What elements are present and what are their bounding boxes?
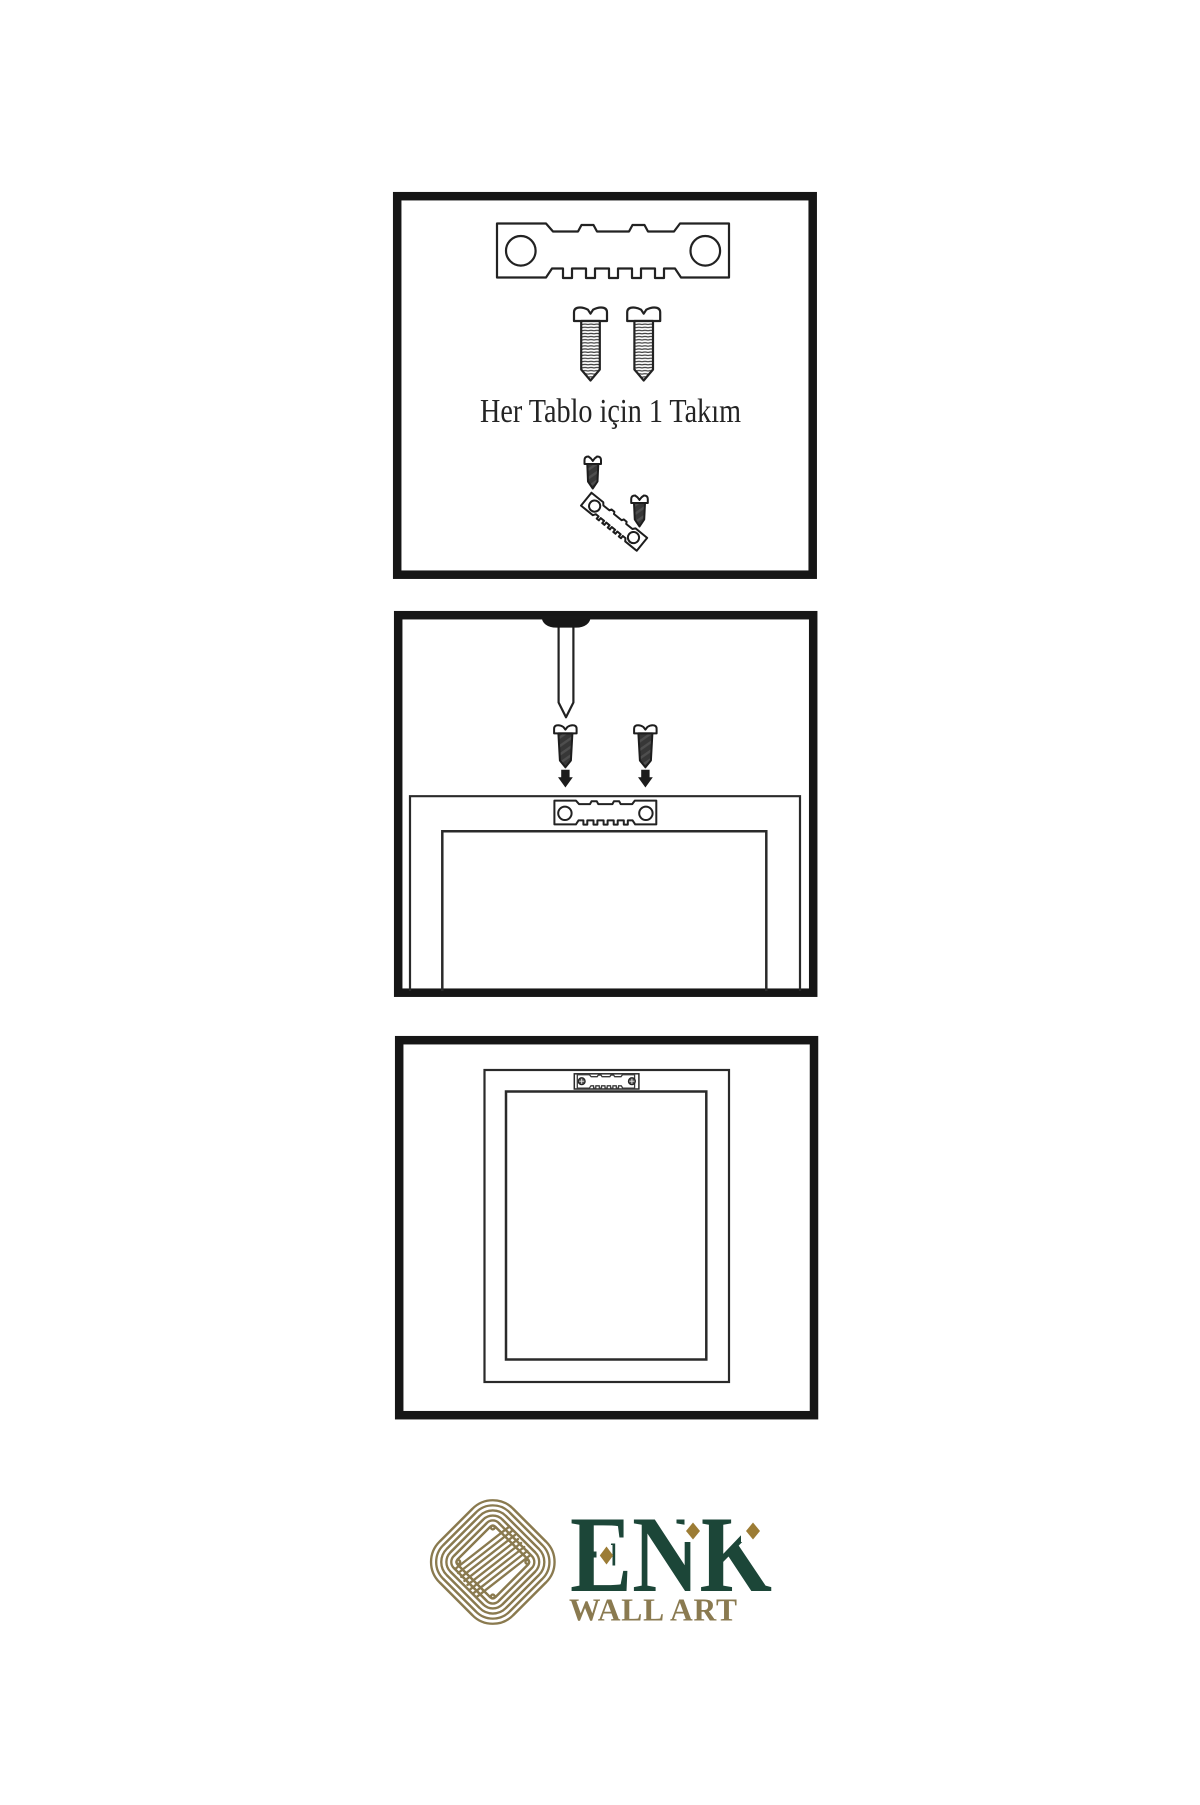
svg-text:Her Tablo için 1 Takım: Her Tablo için 1 Takım — [480, 393, 741, 430]
svg-text:WALL ART: WALL ART — [569, 1593, 737, 1628]
